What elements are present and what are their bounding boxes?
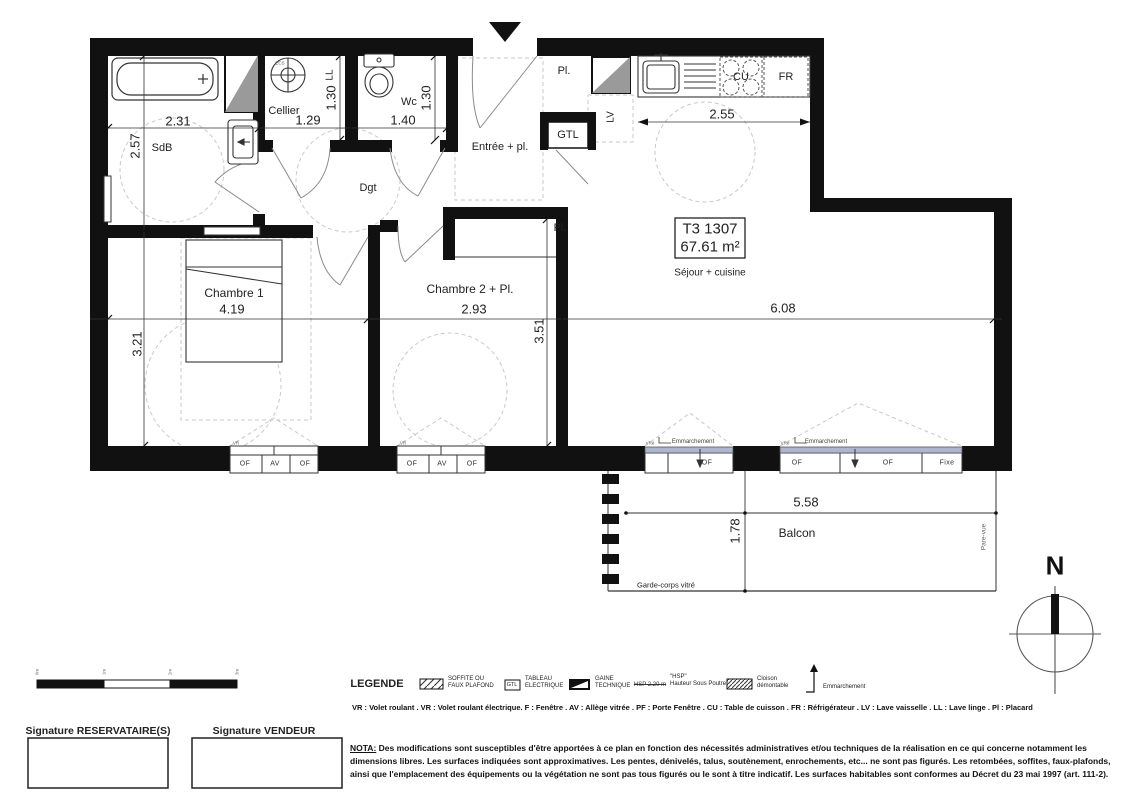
label-garde-corps: Garde-corps vitré [637,581,695,590]
window-sejour-large-of2: OF [883,460,894,467]
room-label-gtl: GTL [557,129,578,141]
dim-cellier-height: 1.30 [324,85,339,110]
window-ch2-of1: OF [407,461,418,468]
window-ch2-vr: VR [400,441,406,446]
dim-balcon-width: 5.58 [793,495,818,510]
room-label-chambre1: Chambre 1 [204,286,263,300]
scale-tick-3: 3m [235,669,240,675]
scale-tick-0: 0m [35,669,40,675]
room-label-wc: Wc [401,96,417,108]
dim-wc-width: 1.40 [390,113,415,128]
room-label-pl-entry: Pl. [558,65,571,77]
appliance-label-ll: LL [325,69,336,80]
dim-sdb-height: 2.57 [128,133,143,158]
legend-item-hsp: "HSP"Hauteur Sous Poutre [670,674,726,688]
nota-text: Des modifications sont susceptibles d'êt… [350,743,1111,779]
nota-paragraph: NOTA: Des modifications sont susceptible… [350,742,1130,781]
unit-area: 67.61 m² [680,239,739,256]
unit-number: T3 1307 [682,221,737,238]
window-sejour-small-step: Emmarchement [672,439,714,445]
floorplan-page: SdB Cellier Wc Entrée + pl. Dgt Pl. GTL … [0,0,1133,800]
room-label-balcon: Balcon [779,526,816,540]
room-label-chambre2: Chambre 2 + Pl. [426,282,513,296]
legend-item-cloison: Cloisondémontable [757,676,788,690]
room-label-dgt: Dgt [359,182,376,194]
label-pare-vue: Pare-vue [981,524,988,550]
north-compass [1009,586,1101,694]
legend-item-soffite: SOFFITE OUFAUX PLAFOND [448,676,494,690]
appliance-label-ecs: ECS [275,61,284,66]
window-sejour-large-fixe: Fixe [940,460,955,467]
window-sejour-small-of: OF [702,460,713,467]
dim-wc-height: 1.30 [419,85,434,110]
dim-sejour-width: 6.08 [770,301,795,316]
dim-kitchen-width: 2.55 [709,107,734,122]
legend-item-emmarchement: Emmarchement [823,684,865,691]
bathtub [112,58,218,100]
legend-abbreviations: VR : Volet roulant . VR : Volet roulant … [352,703,1033,712]
dim-ch1-width: 4.19 [219,302,244,317]
appliance-label-cu: CU [733,71,749,83]
entrance-arrow [489,22,521,42]
dim-balcon-depth: 1.78 [728,518,743,543]
washbasin [228,120,258,164]
dim-cellier-width: 1.29 [295,113,320,128]
toilet [364,54,394,97]
signature-box-reservataire [28,738,168,788]
dim-sdb-width: 2.31 [165,114,190,129]
appliance-label-fr: FR [779,71,794,83]
window-ch1-of2: OF [300,461,311,468]
scale-tick-1: 1m [102,669,107,675]
window-ch1-av: AV [270,461,280,468]
legend-item-tableau: TABLEAUELECTRIQUE [525,676,563,690]
legend-item-gaine: GAINETECHNIQUE [595,676,630,690]
window-ch2-av: AV [437,461,447,468]
dim-ch1-height: 3.21 [130,331,145,356]
dim-ch2-height: 3.51 [532,318,547,343]
window-sejour-large-of1: OF [792,460,803,467]
appliance-label-lv: LV [606,111,617,123]
north-label: N [1046,551,1065,582]
window-sejour-small-vr: VRé [646,441,655,446]
window-ch1-of1: OF [240,461,251,468]
window-sejour-large-step: Emmarchement [805,439,847,445]
room-label-sejour: Séjour + cuisine [674,268,745,279]
legend-gtl-symbol-label: GTL [507,682,518,688]
window-ch1-vr: VR [233,441,239,446]
dim-ch2-width: 2.93 [461,302,486,317]
scale-bar [37,680,237,688]
signature-label-vendeur: Signature VENDEUR [213,725,316,737]
window-ch2-of2: OF [467,461,478,468]
room-label-sdb: SdB [152,142,173,154]
scale-tick-2: 2m [168,669,173,675]
room-label-entree: Entrée + pl. [472,141,529,153]
legend-hsp-sample: HSP 2.20 m [634,682,666,688]
window-sejour-large-vr: VRé [781,441,790,446]
legend-title: LEGENDE [350,678,403,690]
signature-box-vendeur [192,738,342,788]
nota-label: NOTA: [350,743,376,753]
signature-label-reservataire: Signature RESERVATAIRE(S) [25,725,170,737]
room-label-pl-ch2: Pl. [554,222,567,234]
